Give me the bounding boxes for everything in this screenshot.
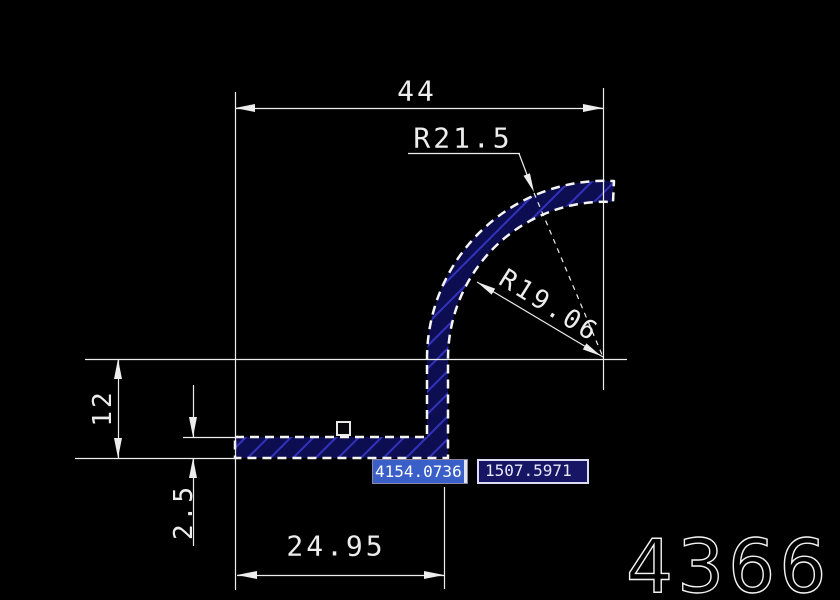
dim-text-top-width[interactable]: 44: [397, 75, 437, 108]
arrowhead-right-icon: [583, 104, 603, 112]
dynamic-input-x-value[interactable]: 4154.0736: [373, 460, 464, 483]
arrowhead-icon: [524, 173, 535, 192]
grip-handle[interactable]: [337, 422, 350, 435]
arrowhead-down-icon: [189, 417, 197, 437]
drawing-number: 4366: [626, 524, 830, 600]
arrowhead-left-icon: [235, 104, 255, 112]
dynamic-input-x-field[interactable]: 4154.0736: [372, 459, 468, 484]
dynamic-input-y-value: 1507.5971: [485, 461, 572, 480]
dim-text-bottom-width[interactable]: 24.95: [286, 530, 385, 563]
dynamic-input-y-field[interactable]: 1507.5971: [477, 459, 589, 484]
dim-text-outer-radius[interactable]: R21.5: [413, 122, 512, 155]
arrowhead-down-icon: [114, 438, 122, 458]
dim-text-left-height[interactable]: 12: [88, 389, 118, 426]
arrowhead-up-icon: [189, 458, 197, 478]
cad-drawing-area[interactable]: 4366 44 R21.5 R19.06 12 2.5 24.95 4154.0…: [0, 0, 840, 600]
dim-text-thickness[interactable]: 2.5: [169, 484, 199, 540]
arrowhead-up-icon: [114, 359, 122, 379]
dimension-top-width[interactable]: [235, 88, 604, 590]
arrowhead-right-icon: [424, 571, 444, 579]
arrowhead-left-icon: [237, 571, 257, 579]
